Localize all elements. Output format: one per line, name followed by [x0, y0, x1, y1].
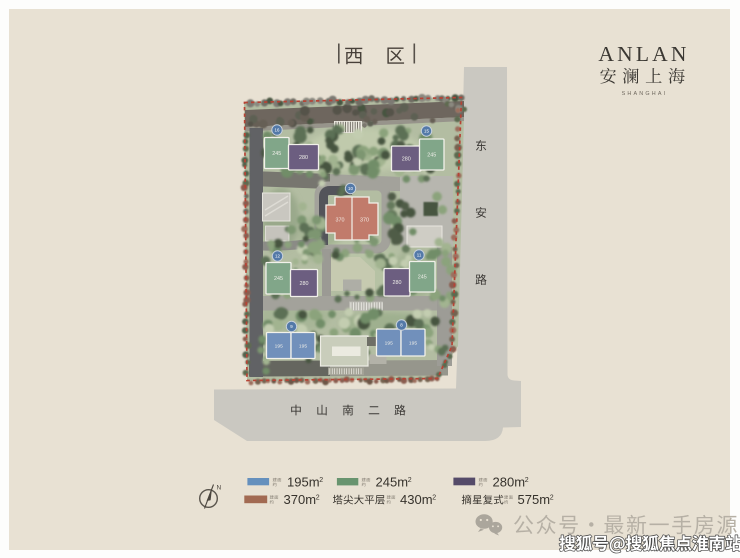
svg-text:280: 280: [299, 155, 308, 161]
svg-text:2: 2: [408, 477, 412, 484]
svg-text:2: 2: [525, 477, 529, 484]
svg-text:370: 370: [336, 218, 345, 224]
svg-text:10: 10: [348, 186, 353, 191]
svg-text:SHANGHAI: SHANGHAI: [622, 91, 668, 97]
svg-text:245: 245: [274, 276, 283, 282]
svg-text:11: 11: [417, 253, 422, 258]
svg-text:ANLAN: ANLAN: [598, 42, 689, 66]
svg-text:280m: 280m: [493, 475, 526, 490]
svg-text:280: 280: [402, 156, 411, 162]
svg-text:2: 2: [316, 495, 320, 502]
svg-text:16: 16: [275, 128, 280, 133]
svg-text:245: 245: [427, 152, 436, 158]
svg-text:280: 280: [393, 280, 402, 286]
svg-text:2: 2: [319, 477, 323, 484]
svg-text:280: 280: [300, 281, 309, 287]
svg-text:15: 15: [424, 129, 429, 134]
svg-text:2: 2: [432, 495, 436, 502]
svg-text:195: 195: [299, 343, 307, 349]
svg-text:245m: 245m: [376, 475, 409, 490]
svg-text:195: 195: [385, 340, 393, 346]
svg-text:430m: 430m: [400, 492, 433, 507]
svg-text:370: 370: [360, 218, 369, 224]
svg-text:575m: 575m: [518, 492, 551, 507]
svg-text:245: 245: [418, 275, 427, 281]
svg-text:195m: 195m: [287, 475, 320, 490]
svg-text:12: 12: [275, 254, 280, 259]
svg-text:245: 245: [272, 151, 281, 157]
svg-text:195: 195: [409, 340, 417, 346]
svg-text:N: N: [217, 485, 222, 492]
svg-text:370m: 370m: [284, 492, 317, 507]
svg-text:2: 2: [550, 495, 554, 502]
svg-text:195: 195: [275, 343, 283, 349]
